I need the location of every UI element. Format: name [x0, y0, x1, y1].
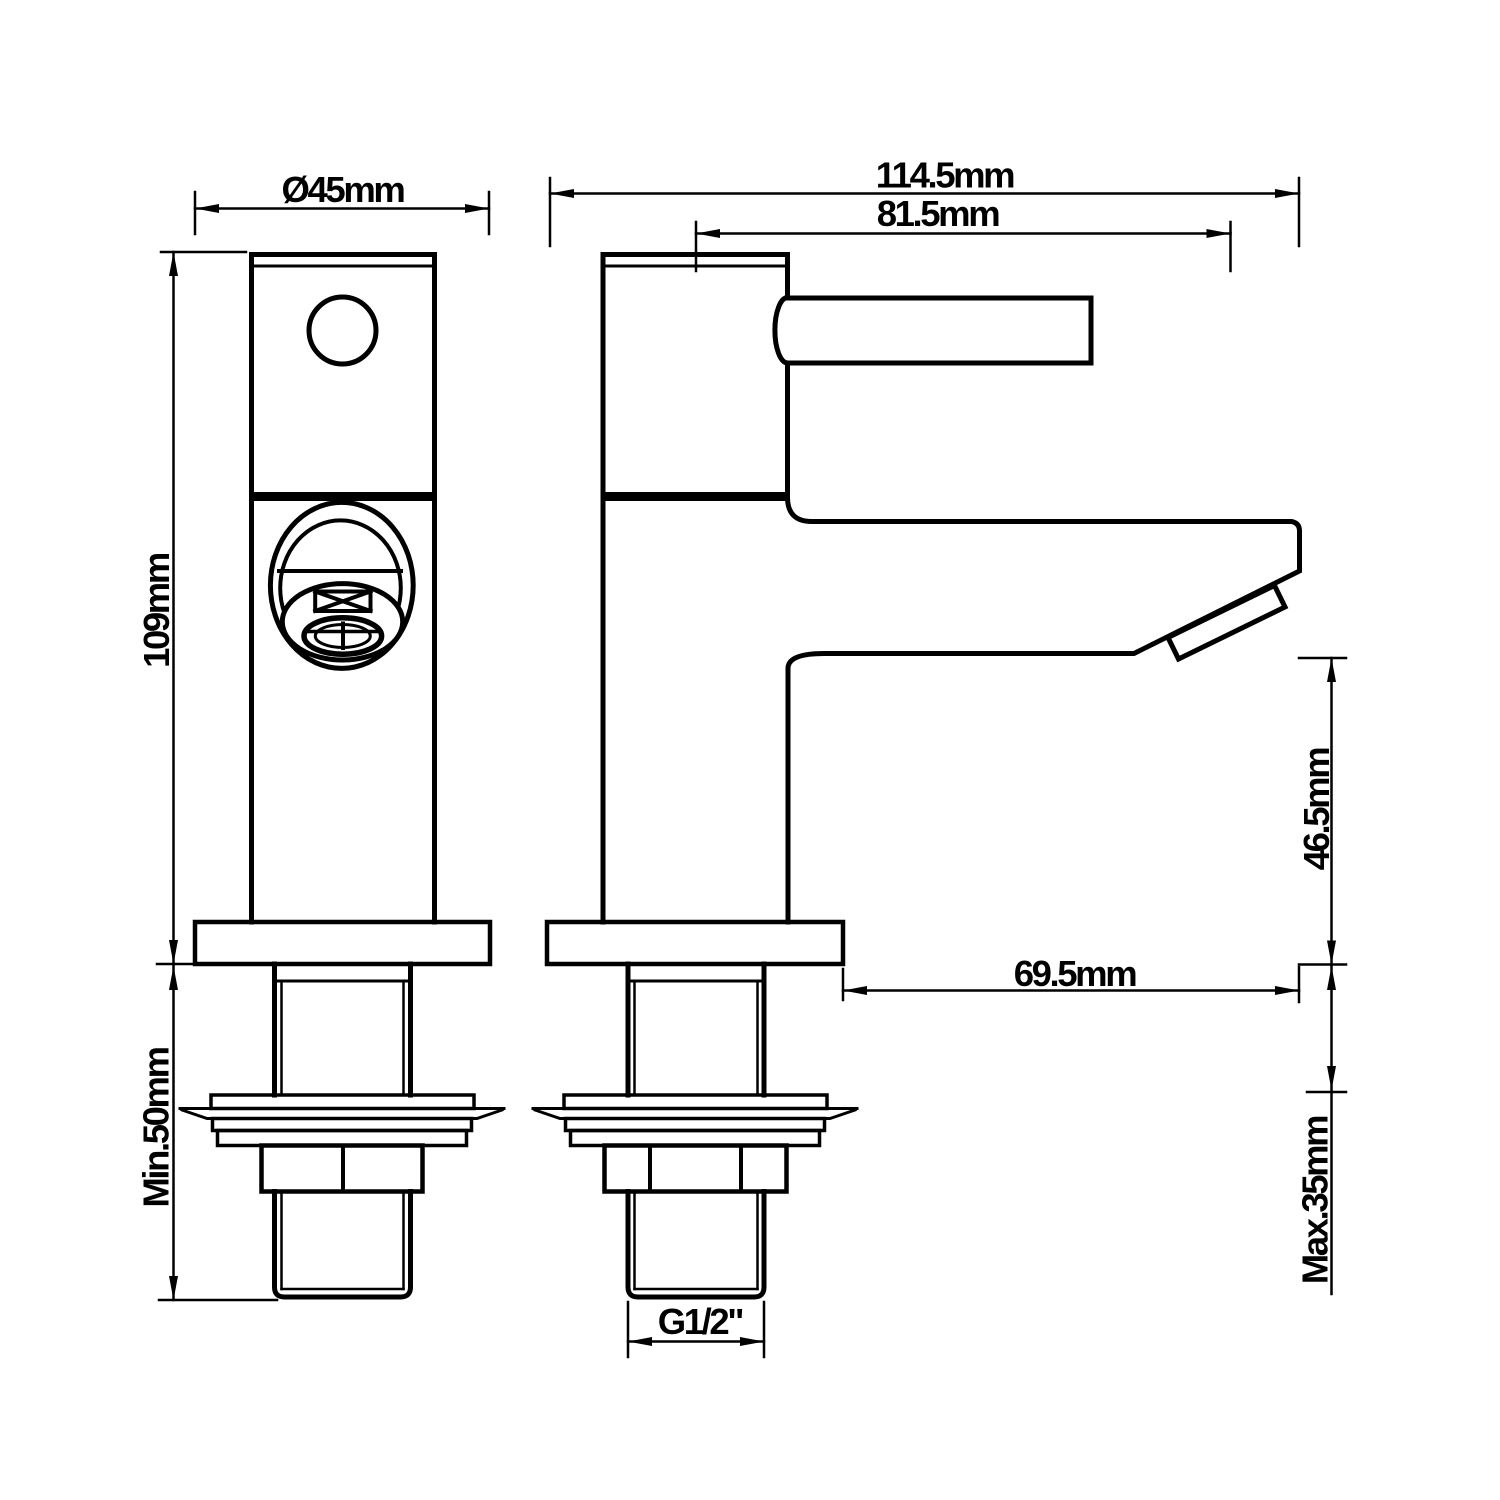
svg-text:69.5mm: 69.5mm: [1014, 953, 1136, 994]
svg-text:109mm: 109mm: [136, 553, 177, 668]
svg-text:Min.50mm: Min.50mm: [136, 1047, 177, 1207]
svg-text:46.5mm: 46.5mm: [1296, 748, 1337, 870]
svg-text:Max.35mm: Max.35mm: [1295, 1116, 1336, 1284]
svg-text:G1/2": G1/2": [658, 1301, 743, 1342]
svg-text:Ø45mm: Ø45mm: [282, 169, 405, 210]
svg-text:81.5mm: 81.5mm: [877, 193, 999, 234]
svg-text:114.5mm: 114.5mm: [876, 155, 1014, 196]
